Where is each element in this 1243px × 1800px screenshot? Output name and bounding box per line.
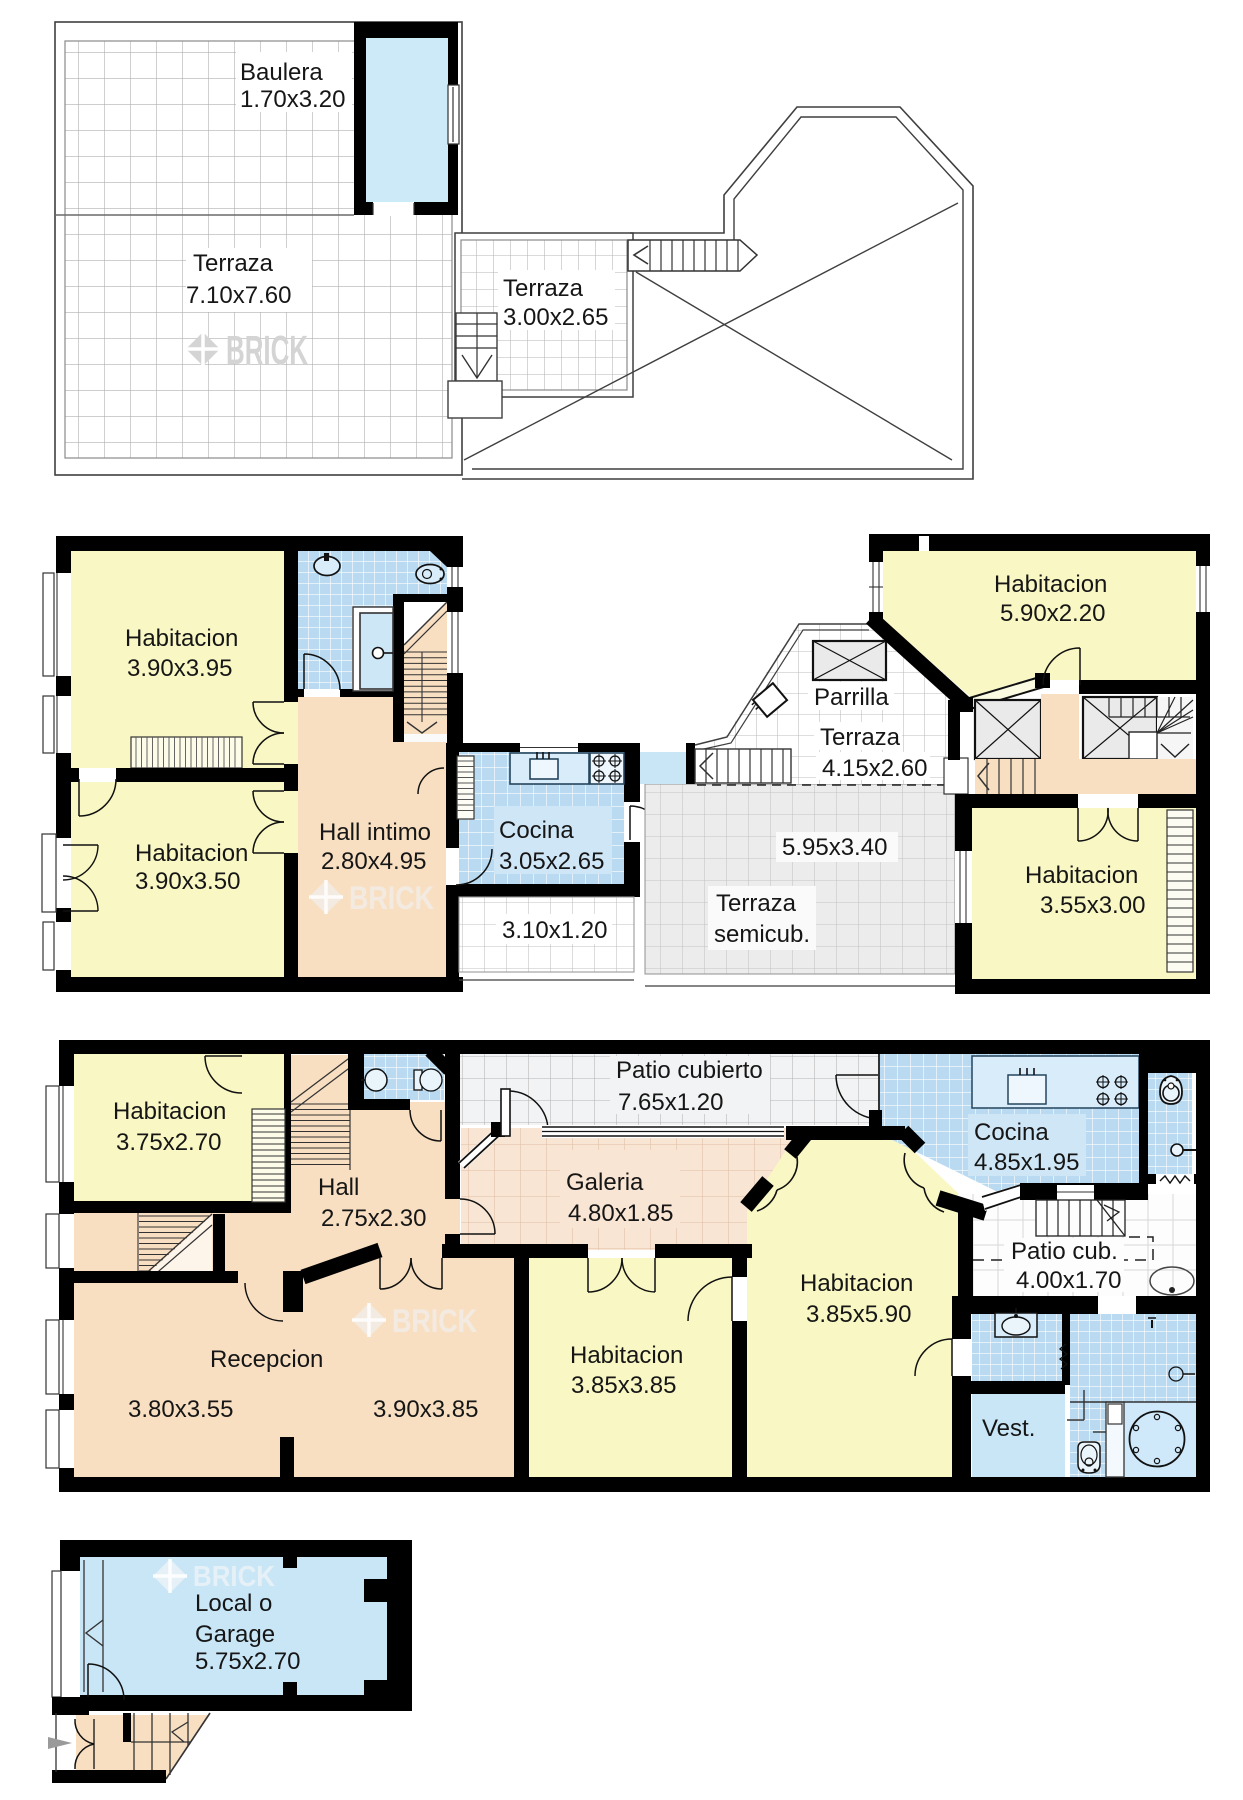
svg-text:Baulera: Baulera [240,59,323,86]
svg-text:3.05x2.65: 3.05x2.65 [499,848,604,875]
svg-text:Parrilla: Parrilla [814,684,889,711]
svg-text:2.80x4.95: 2.80x4.95 [321,848,426,875]
svg-text:BRICK: BRICK [392,1303,477,1339]
svg-text:3.80x3.55: 3.80x3.55 [128,1396,233,1423]
svg-text:Terraza: Terraza [716,890,797,917]
svg-text:3.85x3.85: 3.85x3.85 [571,1372,676,1399]
svg-text:Garage: Garage [195,1621,275,1648]
svg-text:Habitacion: Habitacion [994,571,1107,598]
svg-text:Hall: Hall [318,1174,359,1201]
svg-text:Galeria: Galeria [566,1169,644,1196]
svg-text:7.65x1.20: 7.65x1.20 [618,1089,723,1116]
svg-text:Hall intimo: Hall intimo [319,819,431,846]
svg-text:5.75x2.70: 5.75x2.70 [195,1648,300,1675]
svg-text:4.00x1.70: 4.00x1.70 [1016,1267,1121,1294]
svg-text:3.10x1.20: 3.10x1.20 [502,917,607,944]
svg-text:3.55x3.00: 3.55x3.00 [1040,892,1145,919]
svg-text:Terraza: Terraza [193,250,274,277]
svg-text:semicub.: semicub. [714,921,810,948]
svg-text:Terraza: Terraza [820,724,901,751]
svg-text:Habitacion: Habitacion [1025,862,1138,889]
svg-text:5.95x3.40: 5.95x3.40 [782,834,887,861]
svg-text:BRICK: BRICK [193,1561,275,1593]
svg-text:2.75x2.30: 2.75x2.30 [321,1205,426,1232]
svg-text:3.90x3.95: 3.90x3.95 [127,655,232,682]
svg-text:Habitacion: Habitacion [125,625,238,652]
svg-text:Terraza: Terraza [503,275,584,302]
svg-text:3.00x2.65: 3.00x2.65 [503,304,608,331]
svg-text:Habitacion: Habitacion [135,840,248,867]
svg-text:Patio cubierto: Patio cubierto [616,1057,763,1084]
svg-text:3.90x3.85: 3.90x3.85 [373,1396,478,1423]
svg-text:4.80x1.85: 4.80x1.85 [568,1200,673,1227]
svg-text:5.90x2.20: 5.90x2.20 [1000,600,1105,627]
svg-text:Habitacion: Habitacion [570,1342,683,1369]
svg-text:Local o: Local o [195,1590,272,1617]
svg-text:BRICK: BRICK [226,327,308,373]
svg-text:Cocina: Cocina [974,1119,1049,1146]
svg-text:Patio cub.: Patio cub. [1011,1238,1118,1265]
svg-text:3.75x2.70: 3.75x2.70 [116,1129,221,1156]
svg-text:1.70x3.20: 1.70x3.20 [240,86,345,113]
svg-text:3.90x3.50: 3.90x3.50 [135,868,240,895]
svg-text:3.85x5.90: 3.85x5.90 [806,1301,911,1328]
svg-text:Habitacion: Habitacion [113,1098,226,1125]
svg-text:BRICK: BRICK [349,880,434,916]
svg-text:Habitacion: Habitacion [800,1270,913,1297]
svg-text:Recepcion: Recepcion [210,1346,323,1373]
svg-text:4.15x2.60: 4.15x2.60 [822,755,927,782]
svg-text:Vest.: Vest. [982,1415,1035,1442]
svg-text:7.10x7.60: 7.10x7.60 [186,282,291,309]
svg-text:Cocina: Cocina [499,817,574,844]
svg-text:4.85x1.95: 4.85x1.95 [974,1149,1079,1176]
